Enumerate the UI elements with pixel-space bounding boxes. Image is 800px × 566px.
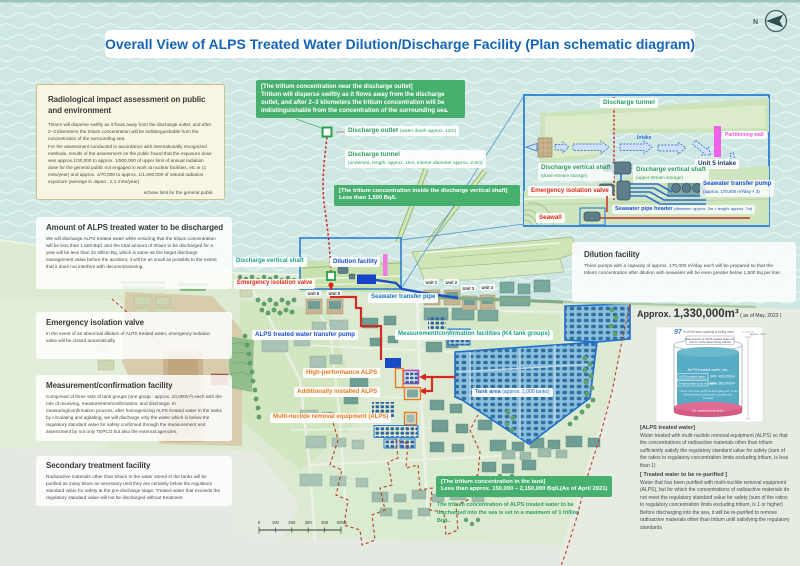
svg-text:ALPS treated water: ALPS treated water <box>679 375 705 379</box>
svg-text:% of the tank capacity is bein: % of the tank capacity is being used <box>683 330 734 334</box>
svg-text:ALPS treated water, etc.: ALPS treated water, etc. <box>688 368 729 372</box>
svg-text:included: included <box>703 396 714 400</box>
svg-text:34%: 460,000m³: 34%: 460,000m³ <box>710 375 736 379</box>
svg-text:200: 200 <box>288 520 296 525</box>
svg-text:approx. 16m: approx. 16m <box>750 332 766 336</box>
svg-text:and % of the tanks being utili: and % of the tanks being utilized <box>689 340 731 344</box>
svg-text:500m: 500m <box>337 520 348 525</box>
svg-text:N: N <box>753 19 758 26</box>
svg-text:300: 300 <box>305 520 313 525</box>
svg-text:400: 400 <box>321 520 329 525</box>
svg-text:100: 100 <box>272 520 280 525</box>
svg-text:66%: 880,000m³: 66%: 880,000m³ <box>710 382 736 386</box>
svg-text:97: 97 <box>674 329 683 336</box>
svg-text:for measurement tanks: for measurement tanks <box>693 409 724 413</box>
